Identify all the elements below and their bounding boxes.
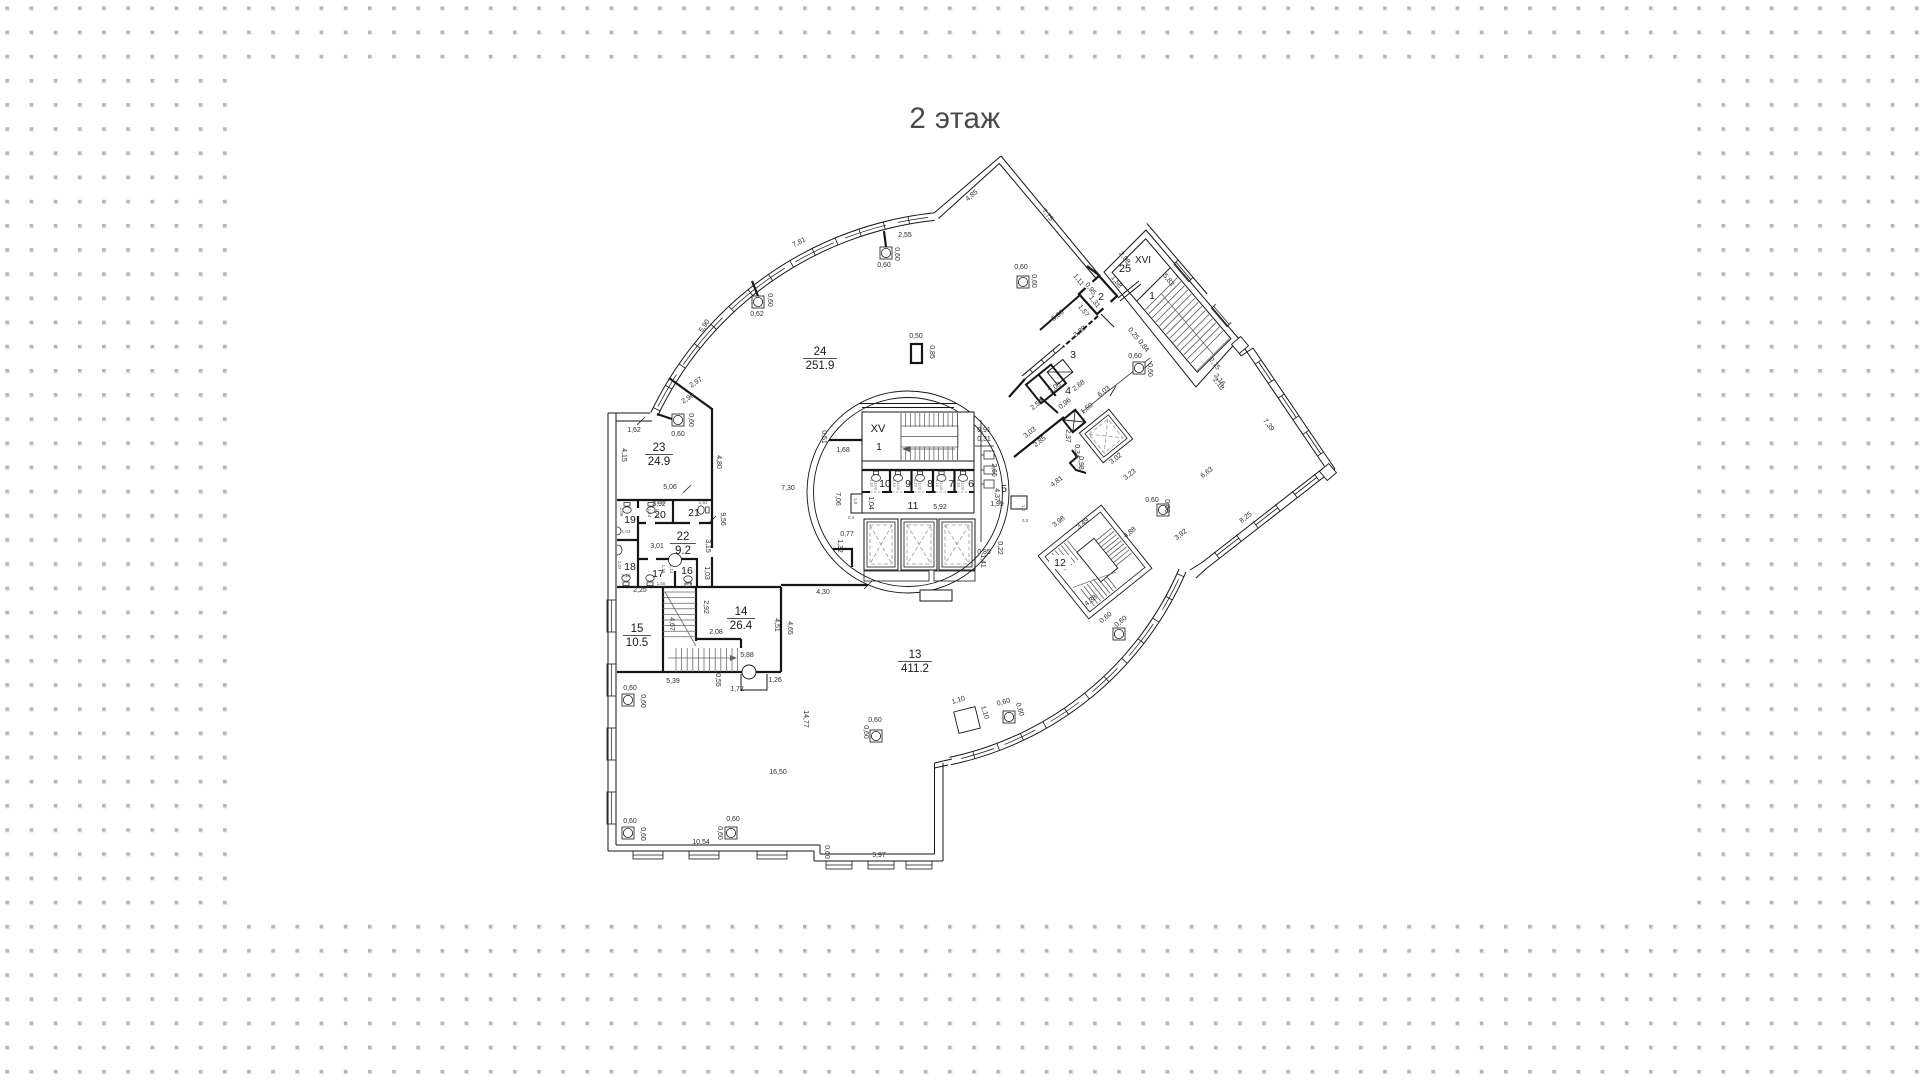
svg-text:1,90: 1,90 xyxy=(657,500,666,505)
svg-text:10,54: 10,54 xyxy=(692,839,710,846)
svg-text:0,60: 0,60 xyxy=(1030,274,1037,288)
svg-text:251.9: 251.9 xyxy=(806,360,835,372)
svg-text:2 этаж: 2 этаж xyxy=(909,102,1000,135)
svg-text:1,03: 1,03 xyxy=(703,566,710,580)
svg-text:0,77: 0,77 xyxy=(840,531,854,538)
svg-text:2,37: 2,37 xyxy=(1064,429,1071,443)
svg-text:1,10: 1,10 xyxy=(622,573,631,578)
svg-text:1,03: 1,03 xyxy=(939,482,944,491)
svg-text:22: 22 xyxy=(677,531,690,543)
svg-text:1,0: 1,0 xyxy=(1021,505,1026,512)
svg-text:0,60: 0,60 xyxy=(893,247,900,261)
svg-text:0,60: 0,60 xyxy=(639,827,646,841)
svg-text:4,80: 4,80 xyxy=(715,455,722,469)
svg-text:1,41: 1,41 xyxy=(979,554,986,568)
svg-text:0,91: 0,91 xyxy=(977,427,991,434)
svg-text:4,15: 4,15 xyxy=(620,448,627,462)
svg-text:1: 1 xyxy=(876,442,882,453)
svg-text:5,97: 5,97 xyxy=(872,852,886,859)
svg-text:1: 1 xyxy=(1149,291,1155,302)
svg-text:0,85: 0,85 xyxy=(928,345,935,359)
svg-text:1,03: 1,03 xyxy=(918,482,923,491)
svg-text:3: 3 xyxy=(1070,349,1076,361)
svg-text:1,03: 1,03 xyxy=(874,482,879,491)
svg-text:0,60: 0,60 xyxy=(1163,499,1170,513)
svg-text:0,51: 0,51 xyxy=(820,430,827,444)
svg-text:0,60: 0,60 xyxy=(1128,353,1142,360)
svg-text:12: 12 xyxy=(1054,557,1066,569)
svg-text:0,60: 0,60 xyxy=(687,413,694,427)
svg-text:1,26: 1,26 xyxy=(768,677,782,684)
svg-text:1,03: 1,03 xyxy=(896,482,901,491)
svg-text:1,04: 1,04 xyxy=(867,496,874,510)
svg-text:2,07: 2,07 xyxy=(617,561,622,570)
svg-text:5,06: 5,06 xyxy=(663,484,677,491)
svg-text:6: 6 xyxy=(968,478,974,490)
svg-text:24.9: 24.9 xyxy=(648,456,670,468)
svg-text:5,88: 5,88 xyxy=(740,652,754,659)
svg-text:0,60: 0,60 xyxy=(823,845,830,859)
svg-text:5: 5 xyxy=(1001,483,1007,495)
svg-text:3,15: 3,15 xyxy=(704,539,711,553)
svg-text:4,37: 4,37 xyxy=(993,488,1000,502)
svg-text:0,9: 0,9 xyxy=(686,581,693,586)
svg-text:14: 14 xyxy=(735,606,748,618)
svg-text:19: 19 xyxy=(624,514,636,526)
svg-text:0,60: 0,60 xyxy=(623,685,637,692)
svg-text:0,60: 0,60 xyxy=(1014,264,1028,271)
svg-text:0,60: 0,60 xyxy=(671,431,685,438)
svg-text:2,25: 2,25 xyxy=(633,587,647,594)
svg-text:26.4: 26.4 xyxy=(730,620,753,632)
svg-text:9: 9 xyxy=(905,478,911,490)
svg-text:0,62: 0,62 xyxy=(750,311,764,318)
svg-text:7,06: 7,06 xyxy=(834,492,841,506)
svg-text:0,60: 0,60 xyxy=(877,262,891,269)
svg-text:9.2: 9.2 xyxy=(675,545,691,557)
svg-text:0,60: 0,60 xyxy=(766,293,773,307)
svg-text:2,92: 2,92 xyxy=(702,600,709,614)
svg-text:4,67: 4,67 xyxy=(668,617,675,631)
svg-text:2,55: 2,55 xyxy=(898,232,912,239)
svg-text:0,60: 0,60 xyxy=(868,717,882,724)
svg-text:0,60: 0,60 xyxy=(1145,497,1159,504)
svg-text:1,14: 1,14 xyxy=(655,509,660,518)
svg-text:7,30: 7,30 xyxy=(781,485,795,492)
svg-text:10: 10 xyxy=(879,478,891,490)
svg-text:0,60: 0,60 xyxy=(1146,363,1153,377)
svg-text:16: 16 xyxy=(681,565,693,577)
svg-text:5,39: 5,39 xyxy=(666,678,680,685)
svg-text:0,50: 0,50 xyxy=(909,333,923,340)
svg-text:1,72: 1,72 xyxy=(730,686,744,693)
svg-text:10.5: 10.5 xyxy=(626,637,648,649)
svg-text:13: 13 xyxy=(909,649,922,661)
svg-text:0,22: 0,22 xyxy=(996,541,1003,555)
svg-text:8: 8 xyxy=(927,478,933,490)
svg-text:XV: XV xyxy=(871,423,886,435)
svg-text:0,60: 0,60 xyxy=(639,694,646,708)
svg-text:1,68: 1,68 xyxy=(836,447,850,454)
svg-text:3,01: 3,01 xyxy=(650,543,664,550)
svg-text:21: 21 xyxy=(688,507,700,519)
svg-text:0,98: 0,98 xyxy=(1077,456,1084,470)
svg-text:0,60: 0,60 xyxy=(623,818,637,825)
svg-text:2,08: 2,08 xyxy=(709,629,723,636)
svg-text:1,14: 1,14 xyxy=(647,509,652,518)
svg-text:1,32: 1,32 xyxy=(836,539,843,553)
svg-text:1,14: 1,14 xyxy=(669,565,674,574)
svg-text:16,50: 16,50 xyxy=(769,769,787,776)
svg-text:4: 4 xyxy=(1065,385,1071,397)
svg-text:0,55: 0,55 xyxy=(714,673,721,687)
svg-text:14,77: 14,77 xyxy=(802,710,809,728)
svg-text:18: 18 xyxy=(624,561,636,573)
svg-text:15: 15 xyxy=(631,623,644,635)
svg-text:4,51: 4,51 xyxy=(773,618,780,632)
svg-text:411.2: 411.2 xyxy=(901,663,929,675)
svg-text:2,66: 2,66 xyxy=(990,463,997,477)
svg-text:0,60: 0,60 xyxy=(862,725,869,739)
svg-text:XVI: XVI xyxy=(1135,255,1151,266)
svg-text:1,99: 1,99 xyxy=(990,501,1004,508)
svg-text:1,15: 1,15 xyxy=(661,565,666,574)
svg-text:1,62: 1,62 xyxy=(627,427,641,434)
svg-text:0,60: 0,60 xyxy=(726,816,740,823)
svg-text:1,91: 1,91 xyxy=(699,500,708,505)
svg-text:0,31: 0,31 xyxy=(977,436,991,443)
svg-text:23: 23 xyxy=(653,442,666,454)
svg-text:1,03: 1,03 xyxy=(622,529,631,534)
svg-text:24: 24 xyxy=(814,346,827,358)
svg-text:0,60: 0,60 xyxy=(716,826,723,840)
svg-text:1,50: 1,50 xyxy=(657,581,666,586)
svg-text:4,30: 4,30 xyxy=(816,589,830,596)
svg-text:1,0: 1,0 xyxy=(853,498,858,505)
svg-text:11: 11 xyxy=(908,500,919,512)
svg-text:5,92: 5,92 xyxy=(933,504,947,511)
svg-text:0,3: 0,3 xyxy=(1022,518,1029,523)
svg-text:2,08: 2,08 xyxy=(619,508,624,517)
svg-text:4,65: 4,65 xyxy=(786,621,793,635)
svg-text:0,3: 0,3 xyxy=(848,515,855,520)
svg-text:9,56: 9,56 xyxy=(719,512,726,526)
svg-text:1,03: 1,03 xyxy=(961,482,966,491)
svg-text:7: 7 xyxy=(949,478,955,490)
